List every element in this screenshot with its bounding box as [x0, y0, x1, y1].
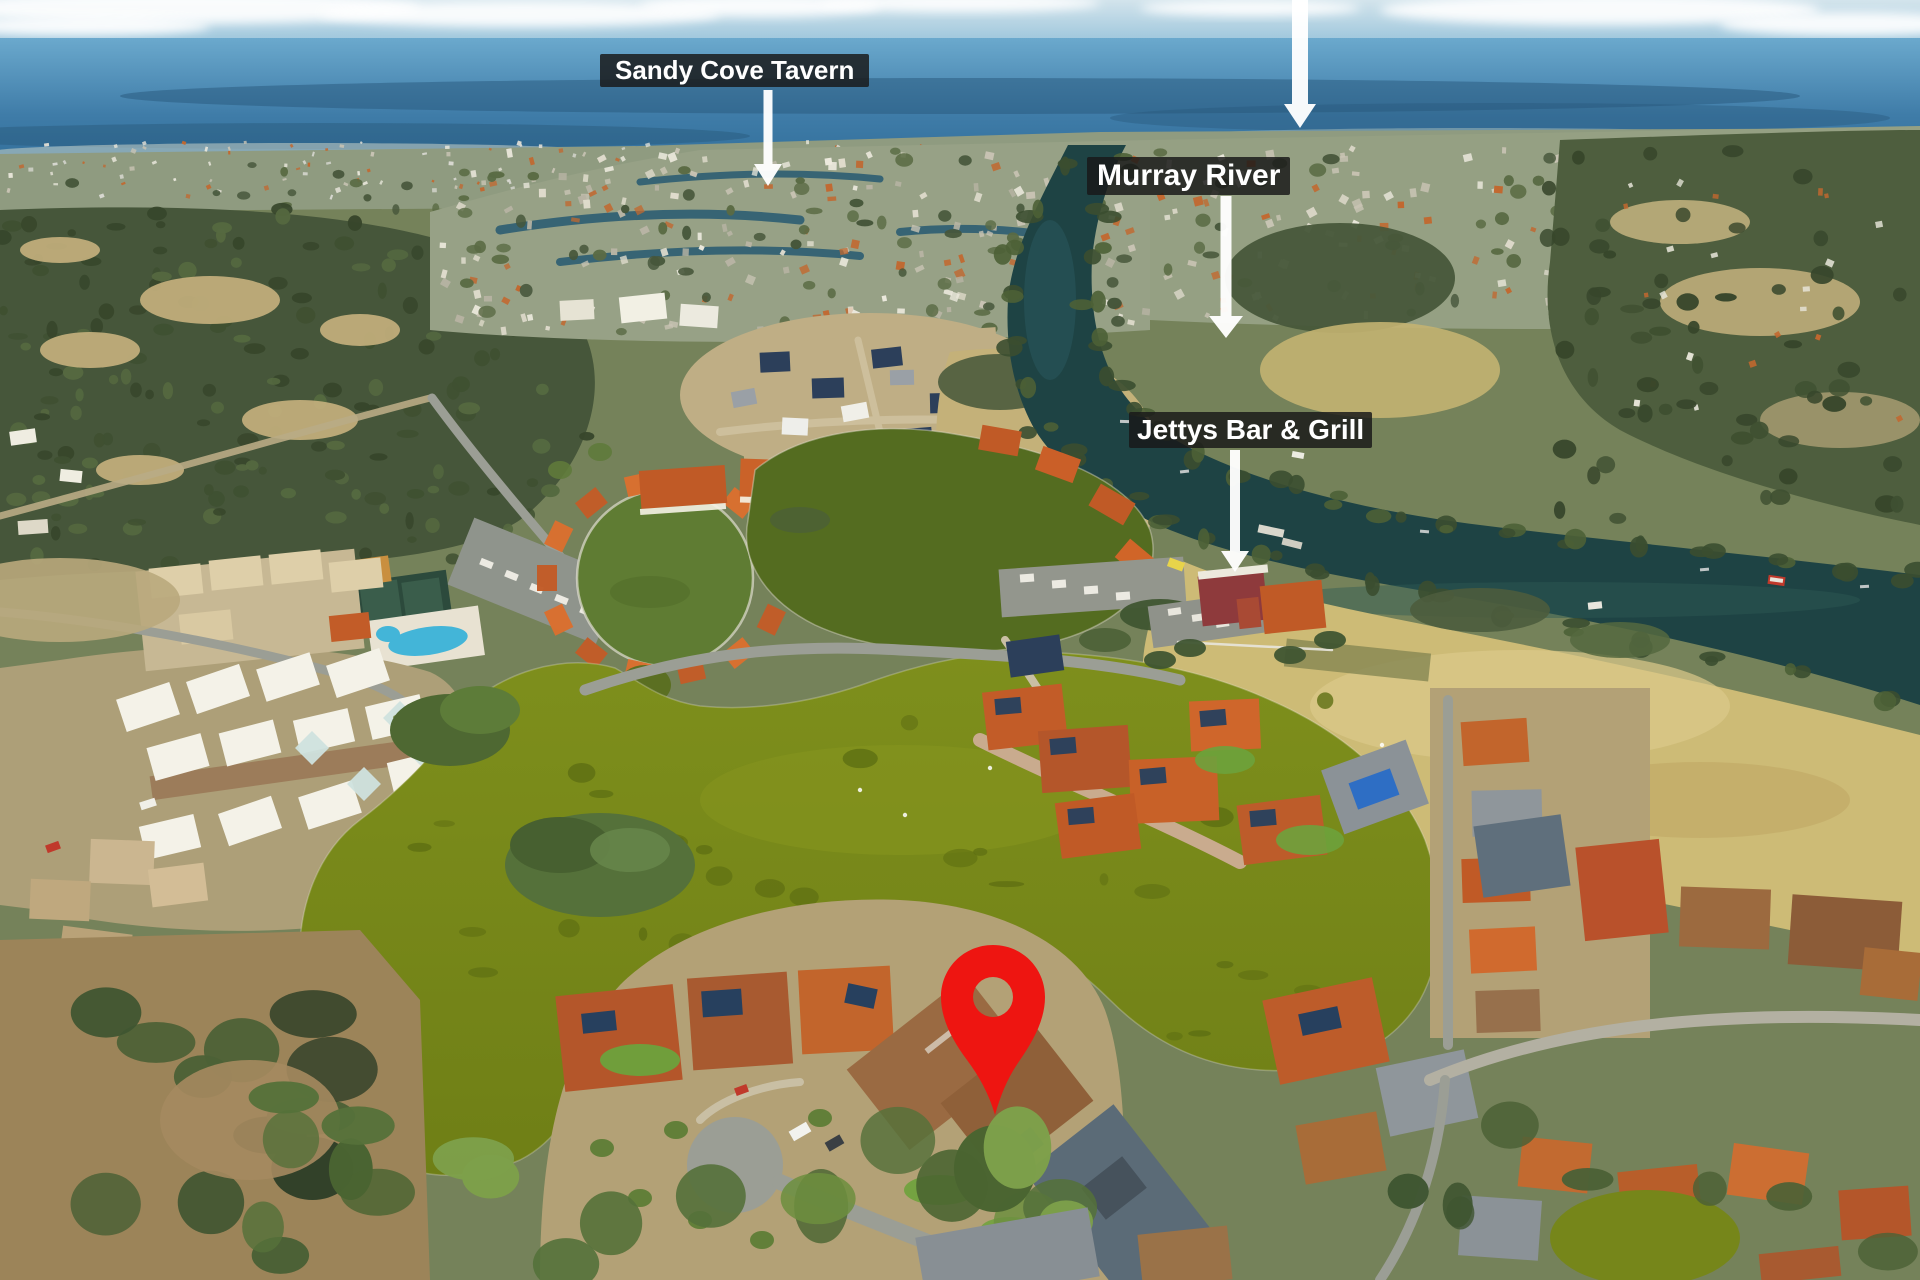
label-murray-river: Murray River — [1087, 157, 1290, 195]
label-jettys-bar-grill: Jettys Bar & Grill — [1129, 412, 1372, 448]
aerial-photo: Sandy Cove Tavern Murray River Jettys Ba… — [0, 0, 1920, 1280]
aerial-photo-canvas — [0, 0, 1920, 1280]
label-sandy-cove-tavern: Sandy Cove Tavern — [600, 54, 869, 87]
